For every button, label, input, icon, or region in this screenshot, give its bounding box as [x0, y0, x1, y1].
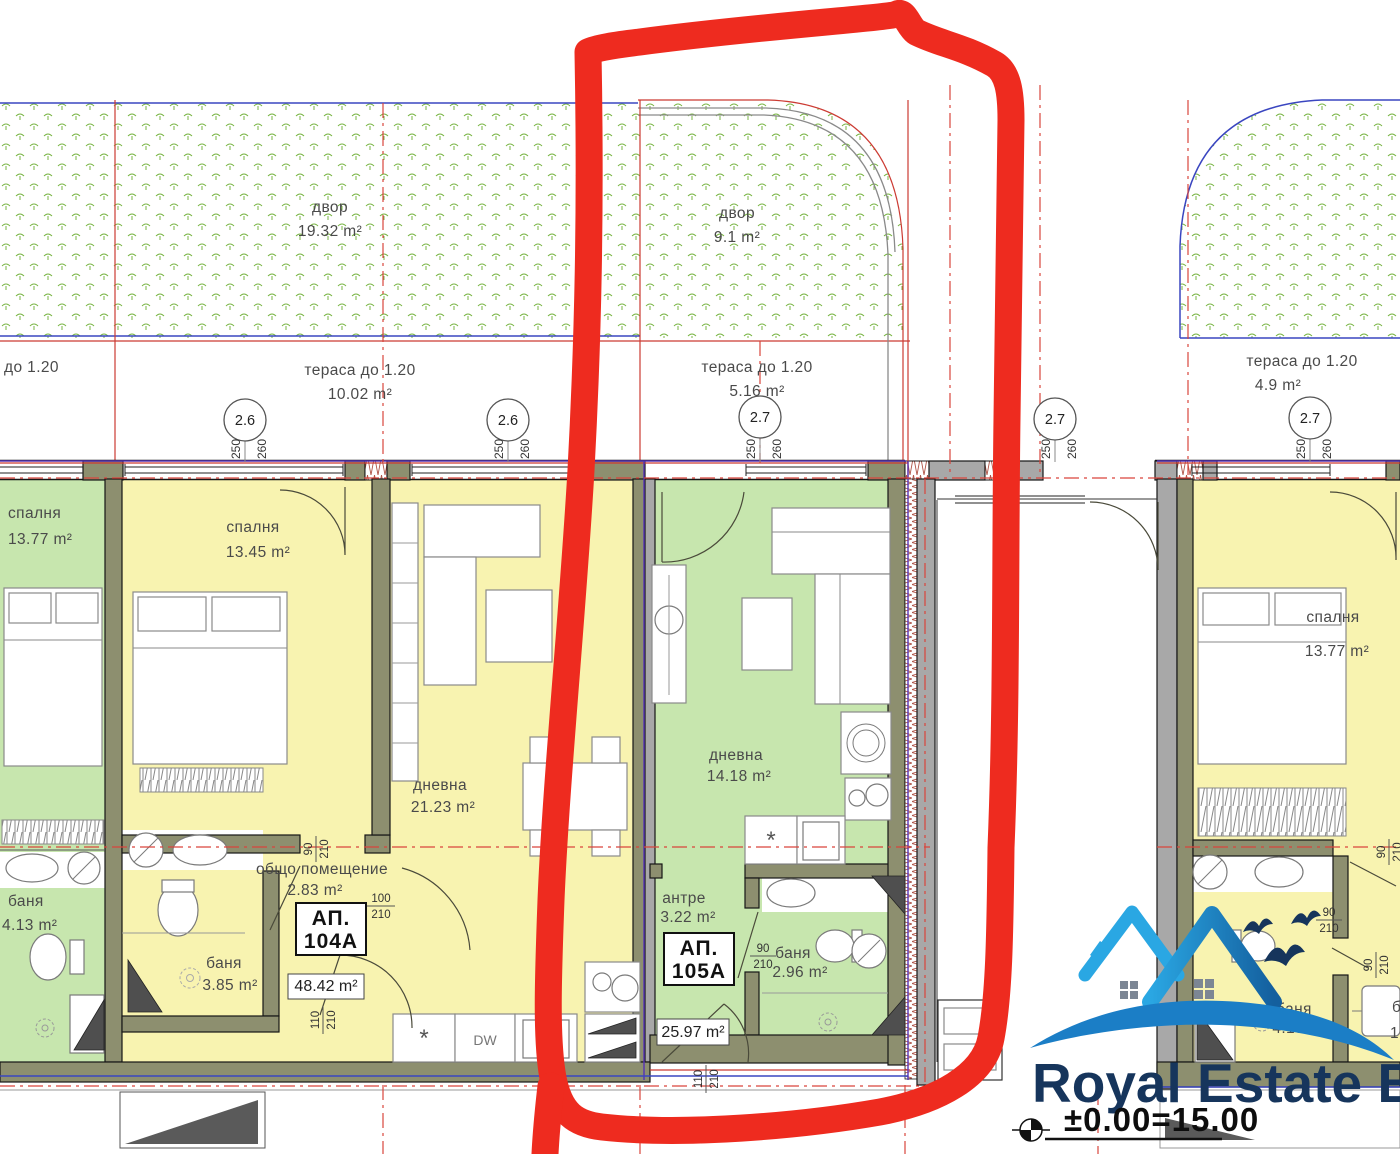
kitchen-dw-label: DW	[473, 1032, 497, 1048]
burner	[593, 973, 611, 991]
terrace1-area: 10.02 m²	[328, 386, 392, 403]
garden-right-fill	[1180, 100, 1400, 338]
partial-right-name: б	[1392, 999, 1400, 1016]
dim-den: 210	[1379, 955, 1391, 974]
wall-bath104	[263, 871, 279, 1016]
grid-axis-bubbles: 2.6 250 260 2.6 250 260 2.7 250 260 2.7 …	[224, 396, 1334, 462]
gap-door-arc	[1090, 502, 1158, 570]
dining-table	[523, 763, 627, 830]
grid-bubble-label: 2.6	[235, 413, 255, 429]
pillow	[56, 593, 98, 623]
sink-104	[173, 835, 227, 865]
bedroom-104-name: спалня	[226, 519, 279, 536]
apt-104-total: 48.42 m²	[294, 978, 358, 995]
toilet-bowl-105	[816, 930, 854, 962]
bedroom-right-name: спалня	[1306, 609, 1359, 626]
grid-bubble-label: 2.7	[1300, 411, 1320, 427]
wall-left-column	[105, 479, 122, 1062]
grid-dim-250: 250	[492, 439, 506, 459]
toilet-bowl	[30, 934, 66, 980]
dim-num: 110	[693, 1070, 705, 1088]
garden2-area: 9.1 m²	[714, 229, 760, 246]
apt-104-label: АП.	[312, 907, 351, 930]
wall-hall-bath-a	[745, 878, 759, 908]
apt-105-total: 25.97 m²	[661, 1024, 725, 1041]
level-annotation: ±0.00=15.00	[1064, 1101, 1259, 1138]
sink-105	[767, 879, 815, 907]
apt-104-number: 104А	[304, 930, 358, 953]
grid-dim-260: 260	[518, 439, 532, 459]
pillow	[138, 597, 206, 631]
grid-bubble-label: 2.7	[750, 410, 770, 426]
chair	[592, 737, 620, 763]
grid-bubble-5: 2.7 250 260	[1289, 397, 1334, 462]
garden-areas	[0, 100, 1400, 480]
pillar-gray	[929, 461, 985, 480]
dim-den: 210	[1319, 923, 1338, 935]
grid-dim-260: 260	[770, 439, 784, 459]
common-104-name: общо помещение	[256, 861, 388, 878]
sofa-104-side	[424, 557, 476, 685]
dim-den: 210	[319, 839, 331, 858]
pillow	[9, 593, 51, 623]
right-building-fill	[1193, 480, 1400, 1062]
dim-den: 210	[371, 909, 390, 921]
grid-dim-250: 250	[1039, 439, 1053, 459]
grid-bubble-label: 2.6	[498, 413, 518, 429]
terrace2-name: тераса до 1.20	[701, 359, 812, 376]
wall-bedroom104-living	[372, 479, 390, 835]
dim-den: 210	[709, 1069, 721, 1088]
living-104-area: 21.23 m²	[411, 799, 475, 816]
dim-den: 210	[326, 1010, 338, 1029]
bedroom-right-area: 13.77 m²	[1305, 643, 1369, 660]
burner	[849, 790, 865, 806]
kitchen-star-104: *	[419, 1025, 428, 1052]
window-ticks	[125, 464, 1330, 476]
bench-right	[1198, 788, 1346, 836]
wall-bedroomR-bottom	[1193, 840, 1333, 856]
bedroom-104-area: 13.45 m²	[226, 544, 290, 561]
pillar	[868, 461, 905, 480]
terrace3-name: тераса до 1.20	[1246, 353, 1357, 370]
bench-green	[2, 820, 104, 844]
grid-bubble-label: 2.7	[1045, 412, 1065, 428]
chair	[592, 830, 620, 856]
garden1-area: 19.32 m²	[298, 223, 362, 240]
terrace2-area: 5.16 m²	[729, 383, 784, 400]
dim-den: 210	[1392, 842, 1400, 861]
common-104-area: 2.83 m²	[287, 882, 342, 899]
pillar	[1386, 461, 1400, 480]
pillow	[212, 597, 280, 631]
grid-dim-250: 250	[744, 439, 758, 459]
bath-105-area: 2.96 m²	[772, 964, 827, 981]
joint-insulation-strip	[905, 479, 917, 1079]
wardrobe-104	[392, 503, 418, 781]
pillar-gray	[1155, 461, 1177, 480]
wall-bath104-bottom	[122, 1016, 279, 1032]
pillar-insulation	[365, 461, 387, 480]
coffee-table	[742, 598, 792, 670]
dim-num: 90	[303, 843, 315, 856]
dim-num: 100	[371, 893, 390, 905]
hall-105-name: антре	[662, 890, 706, 907]
garden1-name: двор	[312, 199, 348, 216]
hall-105-area: 3.22 m²	[660, 909, 715, 926]
bath-green-area: 4.13 m²	[2, 917, 57, 934]
bath-105-name: баня	[775, 945, 811, 962]
burner	[612, 975, 638, 1001]
joint-gray-wall	[917, 479, 935, 1085]
grid-bubble-3: 2.7 250 260	[739, 396, 784, 462]
wall-stub-105	[650, 864, 662, 878]
burner	[866, 784, 888, 806]
apt-105-label: АП.	[680, 937, 719, 960]
apt-105-number: 105А	[672, 960, 726, 983]
dim-num: 90	[1376, 846, 1388, 859]
bath-green-name: баня	[8, 893, 44, 910]
pillar	[345, 461, 365, 480]
terrace-partial-label: до 1.20	[4, 359, 59, 376]
garden-left-fill	[0, 100, 638, 338]
living-105-name: дневна	[709, 747, 763, 764]
kitchen-sink-105	[803, 822, 839, 860]
benchmark-symbol	[1012, 1119, 1050, 1141]
sofa-104-top	[424, 505, 540, 557]
dim-110-210-rot-105: 110210	[693, 1065, 721, 1093]
bedroom-green-name: спалня	[8, 505, 61, 522]
grid-bubble-4: 2.7 250 260	[1034, 398, 1079, 462]
washing-machine	[841, 712, 891, 774]
pillar	[83, 461, 123, 480]
bedroom-green-area: 13.77 m²	[8, 531, 72, 548]
bath-104-area: 3.85 m²	[202, 977, 257, 994]
pillar	[593, 461, 645, 480]
sofa-105-side	[815, 574, 890, 704]
grid-bubble-1: 2.6 250 260	[224, 399, 269, 462]
dim-num: 110	[310, 1011, 322, 1029]
toilet-tank-104	[162, 880, 194, 892]
logo-window-small	[1120, 981, 1138, 999]
sofa-105-top	[772, 508, 890, 574]
dim-num: 90	[757, 943, 770, 955]
pillar-insulation	[1177, 461, 1203, 480]
wall-bedroom104-bottom2	[365, 835, 390, 853]
marker-tail	[545, 1086, 551, 1154]
bath-104-name: баня	[206, 955, 242, 972]
terrace3-area: 4.9 m²	[1255, 377, 1301, 394]
garden2-name: двор	[719, 205, 755, 222]
floor-plan-canvas: 2.6 250 260 2.6 250 260 2.7 250 260 2.7 …	[0, 0, 1400, 1154]
pillow	[1203, 593, 1269, 625]
floor-plan-drawing: 2.6 250 260 2.6 250 260 2.7 250 260 2.7 …	[0, 0, 1400, 1154]
terrace1-name: тераса до 1.20	[304, 362, 415, 379]
living-104-name: дневна	[413, 777, 467, 794]
grid-dim-250: 250	[1294, 439, 1308, 459]
dim-num: 90	[1323, 907, 1336, 919]
pillar-gray	[1203, 461, 1217, 480]
pillar	[387, 461, 410, 480]
grid-dim-250: 250	[229, 439, 243, 459]
sink	[6, 854, 58, 882]
partial-right-area: 1	[1390, 1025, 1399, 1042]
grid-dim-260: 260	[255, 439, 269, 459]
sink-right	[1255, 857, 1303, 887]
pouf-104	[486, 590, 552, 662]
wall-hall-bath-b	[745, 972, 759, 1035]
living-105-area: 14.18 m²	[707, 768, 771, 785]
kitchen-star-105: *	[766, 827, 775, 854]
grid-dim-260: 260	[1065, 439, 1079, 459]
grid-dim-260: 260	[1320, 439, 1334, 459]
dim-den: 210	[753, 959, 772, 971]
grid-bubble-2: 2.6 250 260	[487, 399, 532, 462]
wall-bathR-b	[1333, 975, 1348, 1062]
bench-104	[140, 768, 263, 792]
dim-num: 90	[1363, 959, 1375, 972]
toilet-tank	[70, 940, 84, 974]
